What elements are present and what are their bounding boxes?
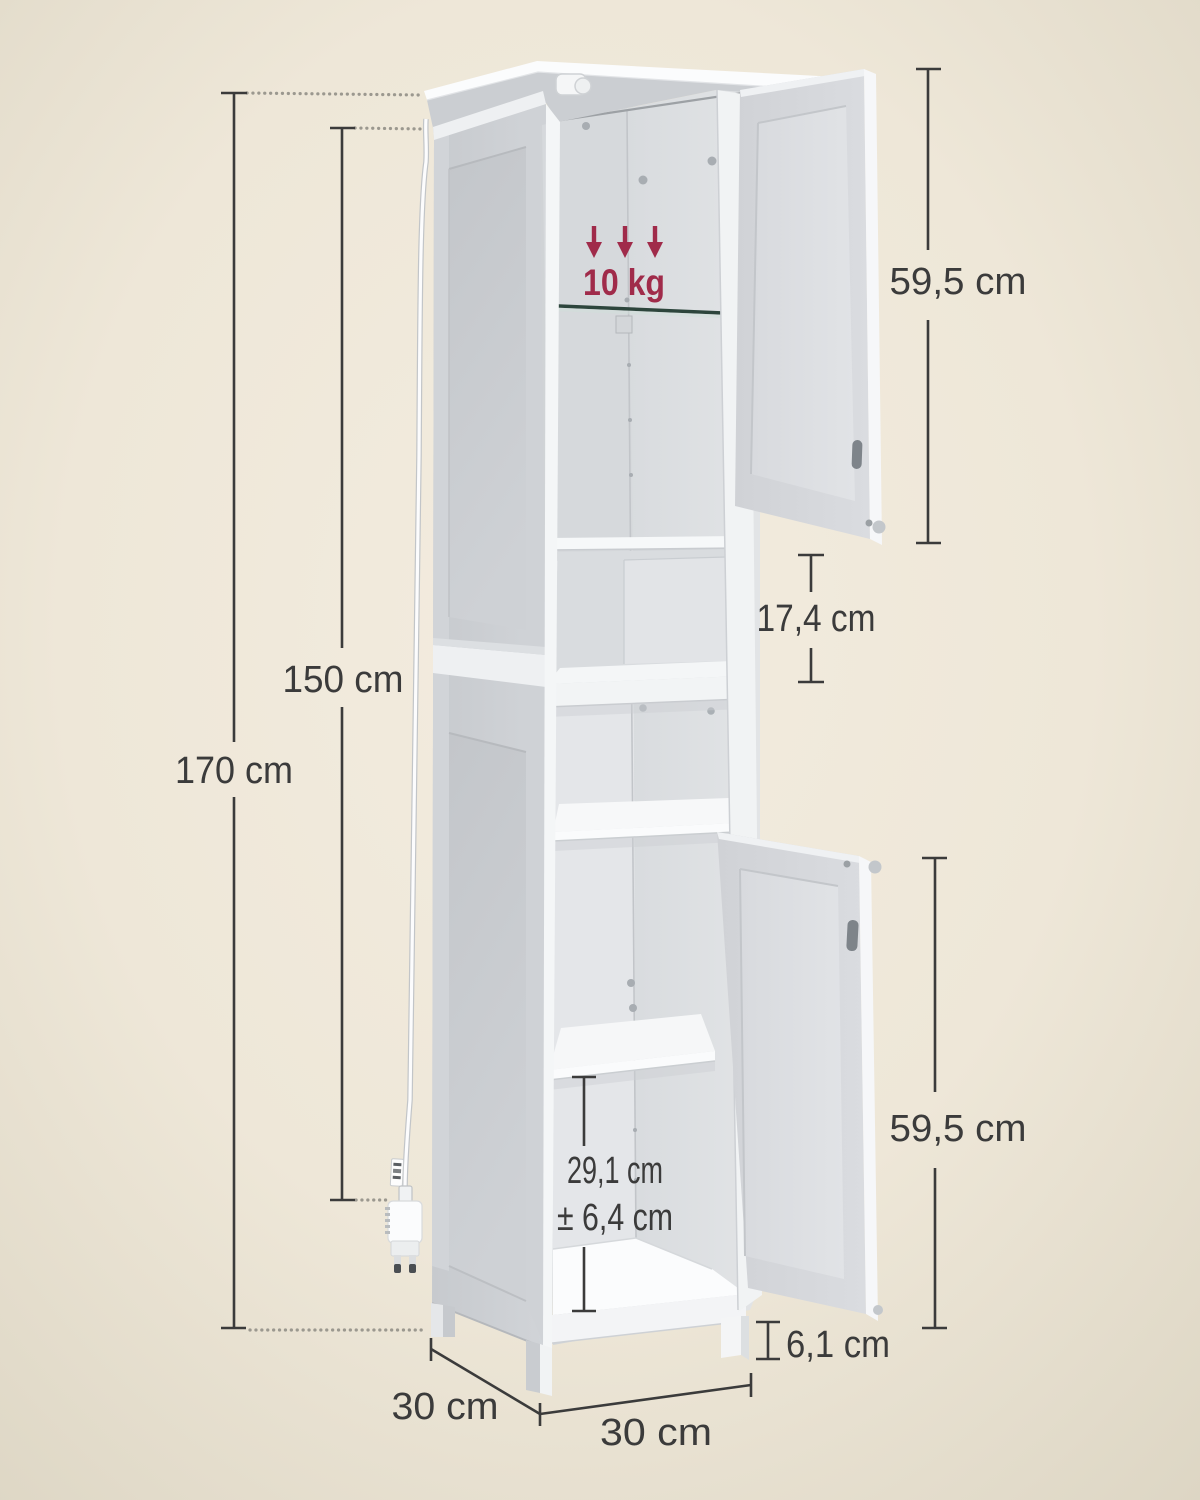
svg-text:± 6,4 cm: ± 6,4 cm bbox=[557, 1197, 673, 1239]
svg-text:59,5 cm: 59,5 cm bbox=[890, 261, 1027, 303]
svg-text:150 cm: 150 cm bbox=[283, 659, 404, 701]
svg-text:59,5 cm: 59,5 cm bbox=[890, 1108, 1027, 1150]
svg-text:29,1 cm: 29,1 cm bbox=[567, 1150, 663, 1192]
svg-text:10 kg: 10 kg bbox=[583, 262, 665, 303]
svg-text:170 cm: 170 cm bbox=[175, 750, 293, 792]
svg-text:6,1 cm: 6,1 cm bbox=[786, 1324, 890, 1366]
svg-text:30 cm: 30 cm bbox=[600, 1412, 712, 1454]
svg-text:30 cm: 30 cm bbox=[392, 1386, 499, 1428]
svg-text:17,4 cm: 17,4 cm bbox=[757, 598, 876, 640]
